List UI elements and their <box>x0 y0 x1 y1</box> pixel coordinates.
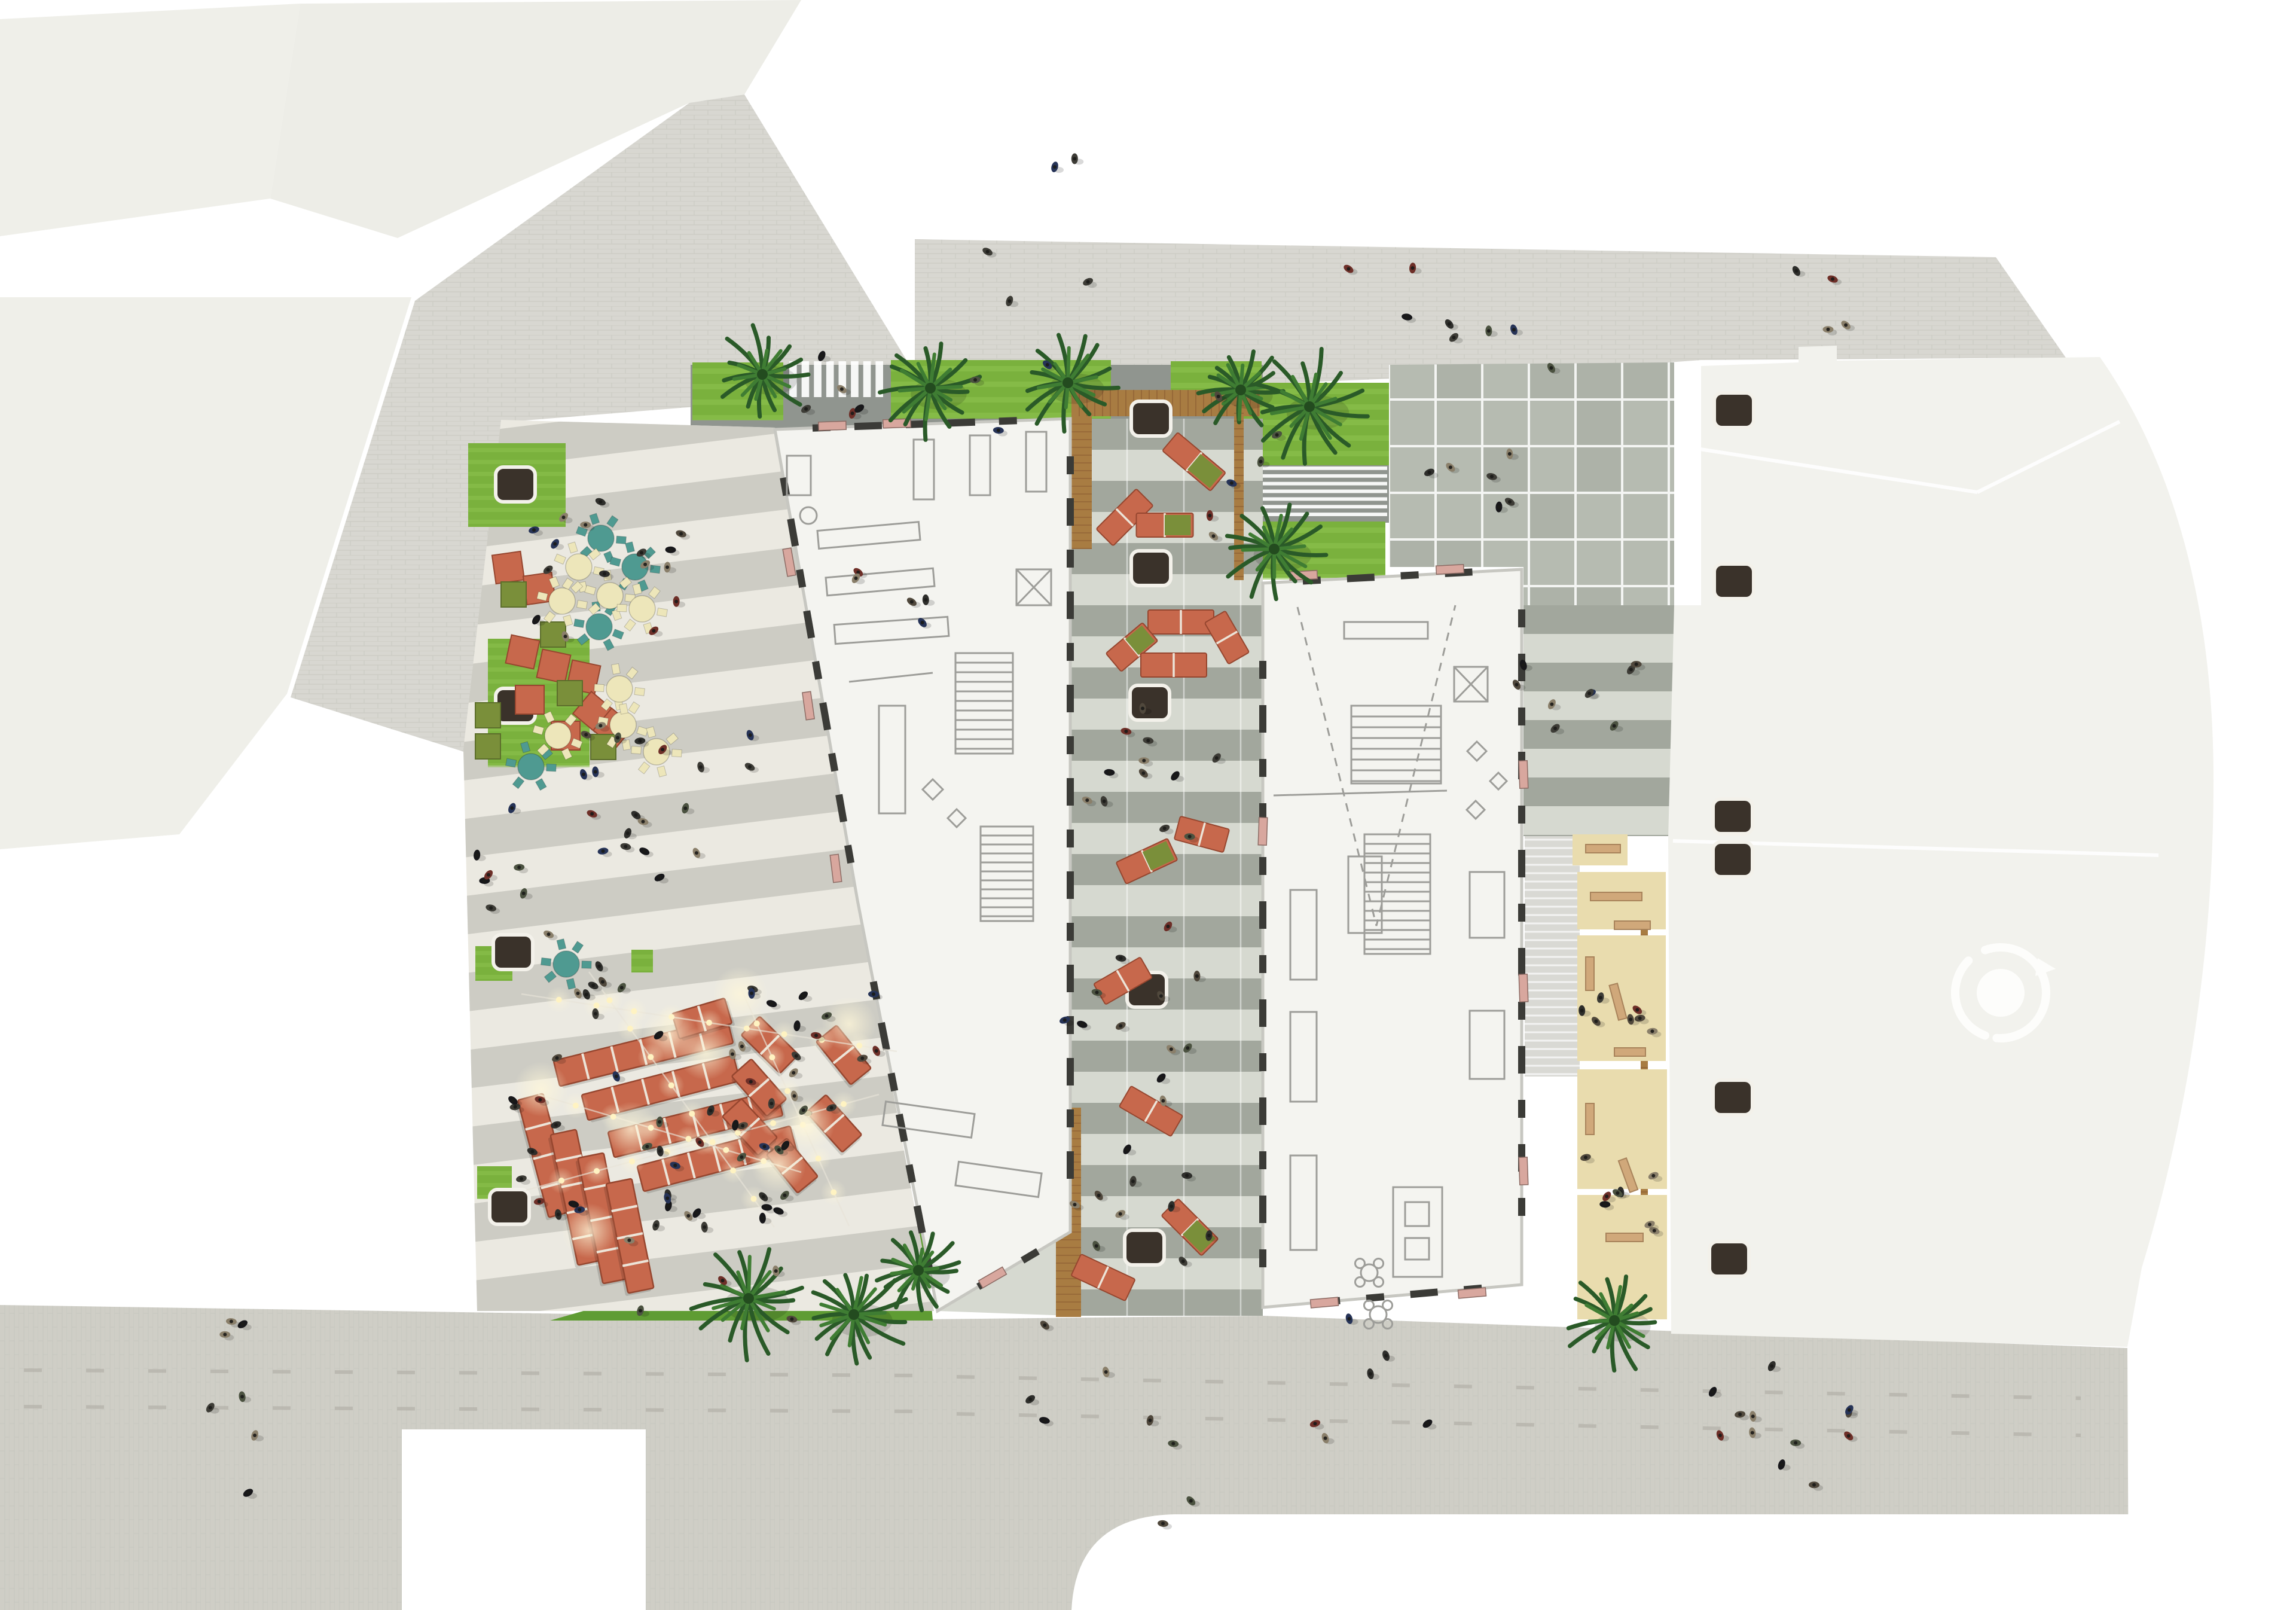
person-head <box>750 992 753 995</box>
person-head <box>1185 1174 1189 1178</box>
person-head <box>1369 1372 1372 1376</box>
planter-bench-orange <box>506 635 540 669</box>
person-head <box>1189 1499 1193 1503</box>
paving-band <box>1070 1041 1263 1072</box>
person-head <box>731 1052 734 1056</box>
table-top <box>629 596 655 622</box>
person-head <box>1085 798 1089 802</box>
crossing-stripe <box>802 361 810 397</box>
tree-pit <box>496 467 535 502</box>
person-head <box>576 992 579 995</box>
wall-window-tick <box>1067 456 1074 474</box>
mow-stripe <box>468 460 566 464</box>
person-head <box>591 984 595 987</box>
person-head <box>1487 329 1491 333</box>
person-head <box>1141 707 1144 711</box>
person-head <box>643 563 647 566</box>
person-head <box>1043 1419 1046 1422</box>
palm-crown <box>1304 401 1315 412</box>
person-head <box>1384 1354 1388 1358</box>
person-head <box>770 1002 774 1005</box>
person-head <box>1508 500 1512 504</box>
person-head <box>804 407 808 411</box>
palm-crown <box>1609 1315 1620 1326</box>
person-head <box>1207 1234 1211 1237</box>
wall-window-tick <box>1259 1097 1266 1125</box>
person-head <box>1635 663 1638 666</box>
person-head <box>1347 1317 1351 1321</box>
person-head <box>603 572 606 575</box>
person-head <box>1428 471 1431 474</box>
person-head <box>582 773 585 776</box>
person-head <box>1043 1324 1046 1327</box>
light-bulb <box>558 1178 564 1184</box>
person-head <box>1550 703 1553 706</box>
light-bulb <box>627 1026 633 1032</box>
palm-crown <box>925 383 936 394</box>
light-glow <box>561 1203 616 1258</box>
chair <box>574 619 585 628</box>
person-head <box>1170 1047 1173 1051</box>
person-head <box>1629 1017 1632 1021</box>
chair <box>657 608 668 617</box>
wall-window-tick <box>1067 1109 1074 1127</box>
person-head <box>1490 475 1494 478</box>
person-head <box>1086 280 1090 283</box>
wall-window-tick <box>1518 708 1525 725</box>
person-head <box>1073 1203 1076 1206</box>
person-head <box>602 849 605 853</box>
modular-bench <box>1148 610 1214 634</box>
person-head <box>840 388 844 391</box>
person-head <box>599 724 602 727</box>
person-head <box>801 994 805 998</box>
person-head <box>1161 1099 1165 1103</box>
person-head <box>1794 269 1798 273</box>
wall-window-tick <box>1518 1002 1525 1020</box>
person-head <box>740 1045 744 1048</box>
person-head <box>1347 267 1350 271</box>
person-head <box>679 532 683 535</box>
person-head <box>734 1123 737 1127</box>
light-glow <box>642 1007 697 1062</box>
person-head <box>658 1120 661 1124</box>
person-head <box>669 548 673 551</box>
planter-green <box>475 703 500 728</box>
person-head <box>1751 1431 1754 1435</box>
person-head <box>601 980 604 984</box>
wall-window-tick <box>1259 1249 1266 1267</box>
table-top <box>545 722 571 749</box>
mow-stripe <box>631 966 653 971</box>
person-head <box>774 1269 778 1273</box>
wall-window-tick <box>1347 574 1375 582</box>
wall-window-tick <box>1067 591 1074 619</box>
person-head <box>654 1224 658 1227</box>
person-head <box>1826 328 1830 331</box>
person-head <box>695 851 698 855</box>
person-head <box>1635 1008 1639 1011</box>
person-head <box>830 1106 833 1109</box>
site-plan-svg <box>0 0 2296 1610</box>
person-head <box>538 1200 541 1203</box>
wall-window-tick <box>1518 1198 1525 1216</box>
person-head <box>1448 322 1451 326</box>
person-head <box>594 1012 597 1016</box>
wall-window-tick <box>1067 643 1074 661</box>
person-head <box>686 1214 690 1218</box>
person-head <box>698 1141 701 1144</box>
floorplan-building-east <box>1258 565 1528 1329</box>
entrance-door <box>1310 1297 1338 1308</box>
person-head <box>921 621 924 624</box>
person-head <box>749 733 752 737</box>
person-head <box>1159 1076 1163 1080</box>
terrace-bench <box>1614 1048 1645 1056</box>
person-head <box>661 748 664 751</box>
person-head <box>1515 683 1519 687</box>
person-head <box>924 598 927 602</box>
crossing-stripe <box>1245 497 1387 501</box>
crossing-stripe <box>851 361 859 397</box>
mow-stripe <box>475 975 512 979</box>
person-head <box>1080 1023 1084 1026</box>
person-head <box>253 1434 257 1437</box>
mow-stripe <box>631 955 653 959</box>
person-head <box>1215 756 1219 760</box>
tree-pit <box>1714 393 1754 428</box>
wall-window-tick <box>1067 830 1074 847</box>
light-bulb <box>706 1020 712 1026</box>
person-head <box>511 1099 515 1102</box>
chair <box>541 958 551 966</box>
paving-band <box>1070 730 1263 761</box>
tree-pit <box>1125 1230 1164 1265</box>
light-bulb <box>685 1136 691 1142</box>
person-head <box>584 523 587 527</box>
person-head <box>1512 328 1516 331</box>
palm-crown <box>913 1265 924 1276</box>
wall-window-tick <box>1067 871 1074 899</box>
mow-stripe <box>477 1171 512 1175</box>
person-head <box>1425 1422 1429 1425</box>
person-head <box>1751 1414 1755 1418</box>
table-top <box>549 588 575 614</box>
planter-bench-orange <box>537 650 571 684</box>
person-head <box>1522 663 1525 667</box>
light-bulb <box>831 1190 836 1196</box>
terrace-bench <box>1586 1103 1594 1135</box>
palm-crown <box>1269 544 1280 554</box>
light-bulb <box>606 997 612 1003</box>
chair <box>617 604 627 612</box>
person-head <box>674 600 678 603</box>
paving-band <box>1523 663 1674 691</box>
light-bulb <box>769 1054 775 1060</box>
mow-stripe <box>477 1183 512 1187</box>
person-head <box>535 618 538 621</box>
modular-bench <box>1137 513 1193 537</box>
person-head <box>1007 299 1011 303</box>
person-head <box>1629 668 1633 672</box>
table-top <box>518 754 544 780</box>
person-head <box>665 1197 669 1200</box>
terrace-bench <box>1614 921 1650 929</box>
chair <box>594 684 604 692</box>
terrace-bench <box>1606 1233 1643 1242</box>
person-head <box>616 736 619 739</box>
person-head <box>1195 974 1199 978</box>
person-head <box>1587 691 1591 695</box>
person-head <box>1163 827 1167 830</box>
person-head <box>1181 1260 1185 1263</box>
entrance-door <box>1519 761 1528 788</box>
road-cutout-rounded <box>1071 1514 2178 1610</box>
entrance-door <box>1519 1157 1528 1185</box>
ramp <box>1525 836 1580 1077</box>
person-head <box>1452 336 1456 339</box>
wall-window-tick <box>1259 1196 1266 1223</box>
paving-band <box>1523 720 1674 749</box>
person-head <box>1146 739 1150 742</box>
wall-window-tick <box>1518 1100 1525 1118</box>
person-head <box>230 1320 233 1324</box>
person-head <box>1097 1194 1101 1197</box>
crossing-stripe <box>814 361 822 397</box>
person-head <box>530 1149 534 1153</box>
person-head <box>762 1145 766 1148</box>
tree-pit <box>493 935 533 969</box>
person-head <box>783 1194 786 1197</box>
person-head <box>597 965 601 968</box>
person-head <box>1166 925 1170 928</box>
person-head <box>658 1149 662 1153</box>
person-head <box>761 1216 764 1220</box>
person-head <box>620 986 624 989</box>
light-bulb <box>841 1101 847 1107</box>
person-head <box>1095 1244 1098 1248</box>
person-head <box>532 528 536 532</box>
wall-window-tick <box>1259 705 1266 733</box>
tree-pit <box>1131 401 1171 436</box>
person-head <box>986 250 990 254</box>
person-head <box>1119 1212 1122 1216</box>
person-head <box>673 1164 677 1167</box>
person-head <box>520 1177 523 1181</box>
wall-window-tick <box>1518 806 1525 824</box>
light-bulb <box>751 1196 757 1202</box>
person-head <box>770 1102 773 1105</box>
person-head <box>1584 1155 1587 1159</box>
light-bulb <box>730 1167 736 1173</box>
person-head <box>683 806 687 810</box>
person-head <box>1844 323 1848 327</box>
person-head <box>641 820 645 824</box>
person-head <box>1616 1191 1619 1195</box>
person-head <box>997 429 1000 432</box>
light-bulb <box>816 1155 822 1161</box>
person-head <box>825 1014 829 1018</box>
person-head <box>1119 956 1123 960</box>
person-head <box>572 1202 575 1206</box>
site-plan <box>0 0 2296 1610</box>
person-head <box>1188 835 1192 838</box>
palm-crown <box>1235 385 1246 395</box>
paving-band <box>1070 792 1263 823</box>
person-head <box>626 831 630 835</box>
person-head <box>1613 724 1616 728</box>
person-head <box>475 853 479 857</box>
person-head <box>1259 460 1263 464</box>
person-head <box>562 516 566 519</box>
person-head <box>590 812 594 816</box>
wall-window-tick <box>1259 901 1266 929</box>
wall-window-tick <box>1067 1151 1074 1179</box>
person-head <box>1594 1020 1598 1023</box>
person-head <box>1046 363 1049 367</box>
tree-pit <box>1709 1242 1749 1276</box>
person-head <box>1770 1364 1773 1368</box>
palm-crown <box>743 1293 754 1304</box>
person-head <box>1124 730 1128 733</box>
person-head <box>740 1155 743 1159</box>
wall-window-tick <box>1067 1058 1074 1085</box>
person-head <box>721 1279 725 1282</box>
wall-window-tick <box>1067 550 1074 568</box>
planter-green <box>557 681 582 706</box>
light-bulb <box>668 1083 674 1088</box>
light-bulb <box>689 1111 695 1117</box>
terraces <box>1573 834 1667 1319</box>
crossing-stripe <box>1245 505 1387 508</box>
person-head <box>699 766 703 769</box>
mow-stripe <box>468 520 566 524</box>
entrance-door <box>1519 974 1528 1002</box>
person-head <box>973 378 977 382</box>
road-cutout <box>402 1429 646 1610</box>
person-head <box>1651 1174 1655 1178</box>
table-top <box>553 951 579 977</box>
person-head <box>792 1094 796 1097</box>
mow-stripe <box>488 655 590 660</box>
person-head <box>640 551 643 554</box>
entrance-door <box>1458 1288 1486 1298</box>
person-head <box>1142 759 1146 763</box>
paving-band <box>1523 777 1674 806</box>
person-head <box>857 407 861 410</box>
person-head <box>910 600 914 603</box>
person-head <box>599 500 602 504</box>
person-head <box>1738 1413 1742 1416</box>
person-head <box>1648 1222 1651 1226</box>
person-head <box>703 1225 706 1229</box>
wall-window-tick <box>1400 571 1419 580</box>
person-head <box>1131 1179 1135 1183</box>
person-head <box>749 1080 753 1084</box>
light-bulb <box>573 1103 579 1109</box>
mow-stripe <box>1242 451 1389 456</box>
person-head <box>667 1204 670 1207</box>
person-head <box>1605 1194 1608 1198</box>
person-head <box>1449 465 1452 469</box>
person-head <box>483 879 486 883</box>
tree-pit <box>1713 799 1752 834</box>
chair <box>619 703 628 714</box>
palm-crown <box>848 1309 859 1320</box>
tree-pit <box>490 1190 529 1224</box>
person-head <box>851 411 854 415</box>
person-head <box>240 1395 244 1398</box>
person-head <box>624 844 627 848</box>
person-head <box>546 568 550 572</box>
person-head <box>762 1195 765 1199</box>
person-head <box>547 932 551 936</box>
entrance-door <box>1436 565 1464 574</box>
person-head <box>557 1213 560 1216</box>
person-head <box>777 1209 780 1213</box>
person-head <box>854 577 857 580</box>
person-head <box>538 1098 542 1102</box>
chair <box>506 758 517 767</box>
person-head <box>1073 157 1076 160</box>
person-head <box>1230 481 1234 485</box>
paving-band <box>1523 605 1674 634</box>
wall-window-tick <box>1259 1053 1266 1071</box>
person-head <box>554 1123 558 1127</box>
crossing-stripe <box>863 361 871 397</box>
person-head <box>795 1054 798 1058</box>
person-head <box>1148 1419 1152 1422</box>
person-head <box>510 806 514 810</box>
terrace-bench <box>1586 844 1620 853</box>
tree-pit <box>1131 551 1171 586</box>
wall-window-tick <box>1518 904 1525 922</box>
wall-window-tick <box>1067 498 1074 526</box>
person-head <box>1170 1205 1173 1208</box>
wall-window-tick <box>1518 1046 1525 1074</box>
person-head <box>875 1049 878 1053</box>
wall-window-tick <box>1259 661 1266 679</box>
person-head <box>615 1075 618 1078</box>
mow-stripe <box>692 415 783 420</box>
person-head <box>564 635 567 638</box>
person-head <box>1411 266 1415 270</box>
person-head <box>634 813 638 817</box>
person-head <box>1405 315 1409 319</box>
chair <box>546 764 557 772</box>
person-head <box>584 733 588 736</box>
light-bulb <box>770 1120 776 1126</box>
person-head <box>1159 994 1163 998</box>
tree-pit <box>1713 1080 1752 1115</box>
chair <box>577 600 588 609</box>
paving-band <box>1070 1227 1263 1258</box>
person-head <box>639 1309 642 1312</box>
wall-window-tick <box>1518 850 1525 877</box>
person-head <box>1028 1398 1032 1401</box>
person-head <box>555 1056 559 1060</box>
person-head <box>1275 433 1279 437</box>
person-head <box>802 1108 805 1112</box>
person-head <box>1324 1437 1327 1440</box>
crossing-stripe <box>1245 474 1387 478</box>
person-head <box>783 1144 787 1147</box>
person-head <box>643 849 646 853</box>
wall-window-tick <box>1518 609 1525 627</box>
wall-window-tick <box>1067 685 1074 712</box>
person-head <box>814 1033 818 1037</box>
person-head <box>1847 1434 1851 1438</box>
